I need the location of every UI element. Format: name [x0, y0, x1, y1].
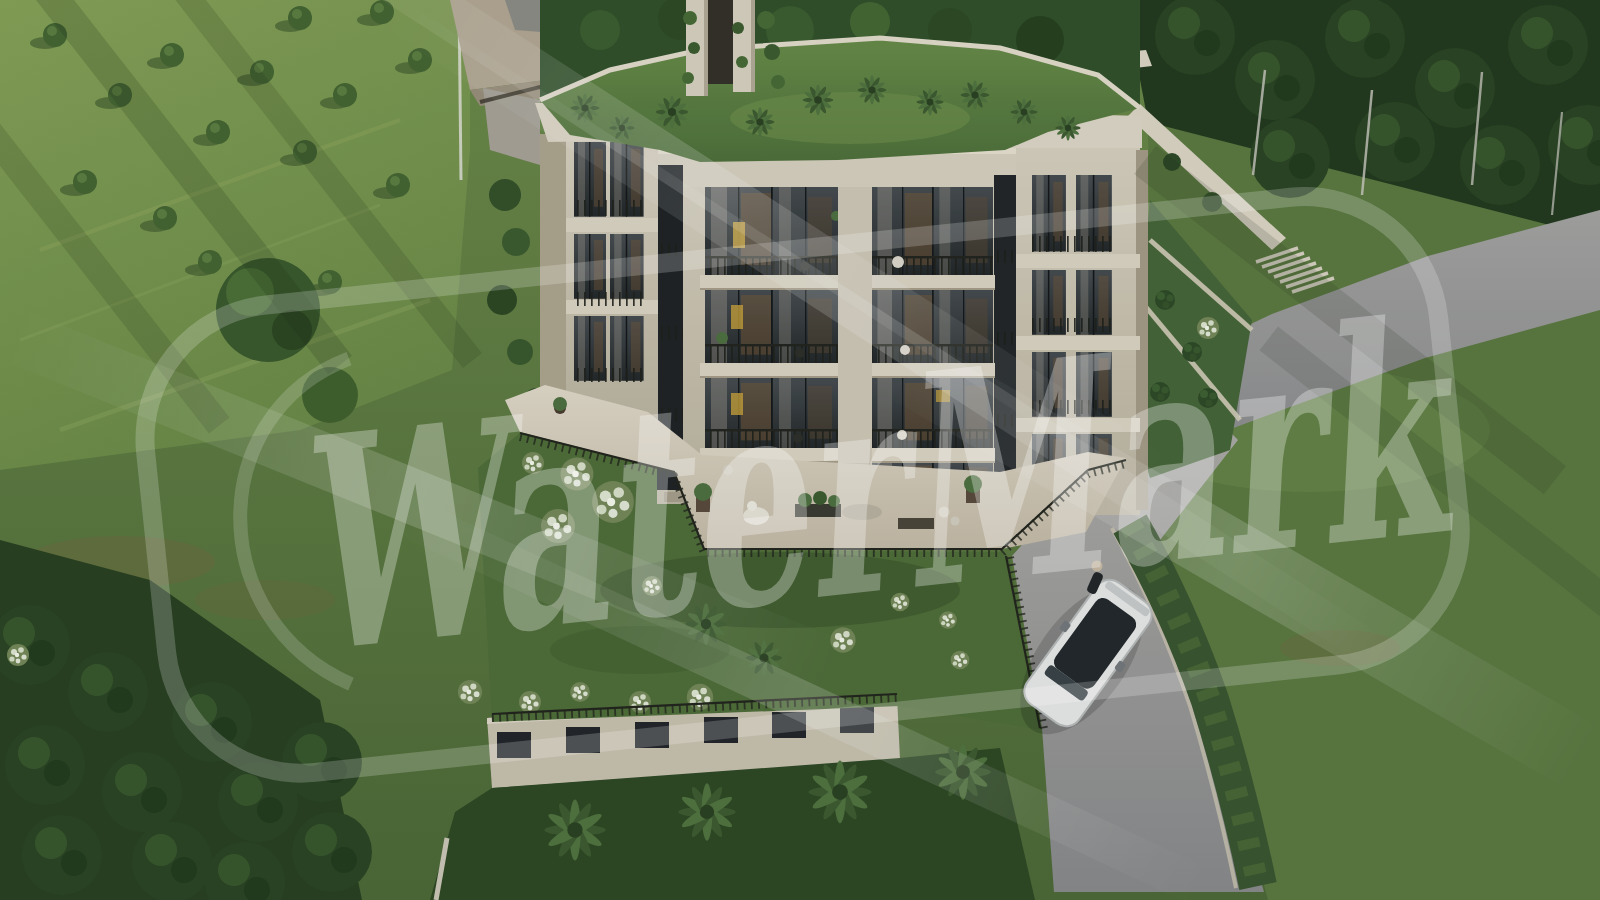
scene-svg: WaterMark	[0, 0, 1600, 900]
render-canvas: WaterMark	[0, 0, 1600, 900]
